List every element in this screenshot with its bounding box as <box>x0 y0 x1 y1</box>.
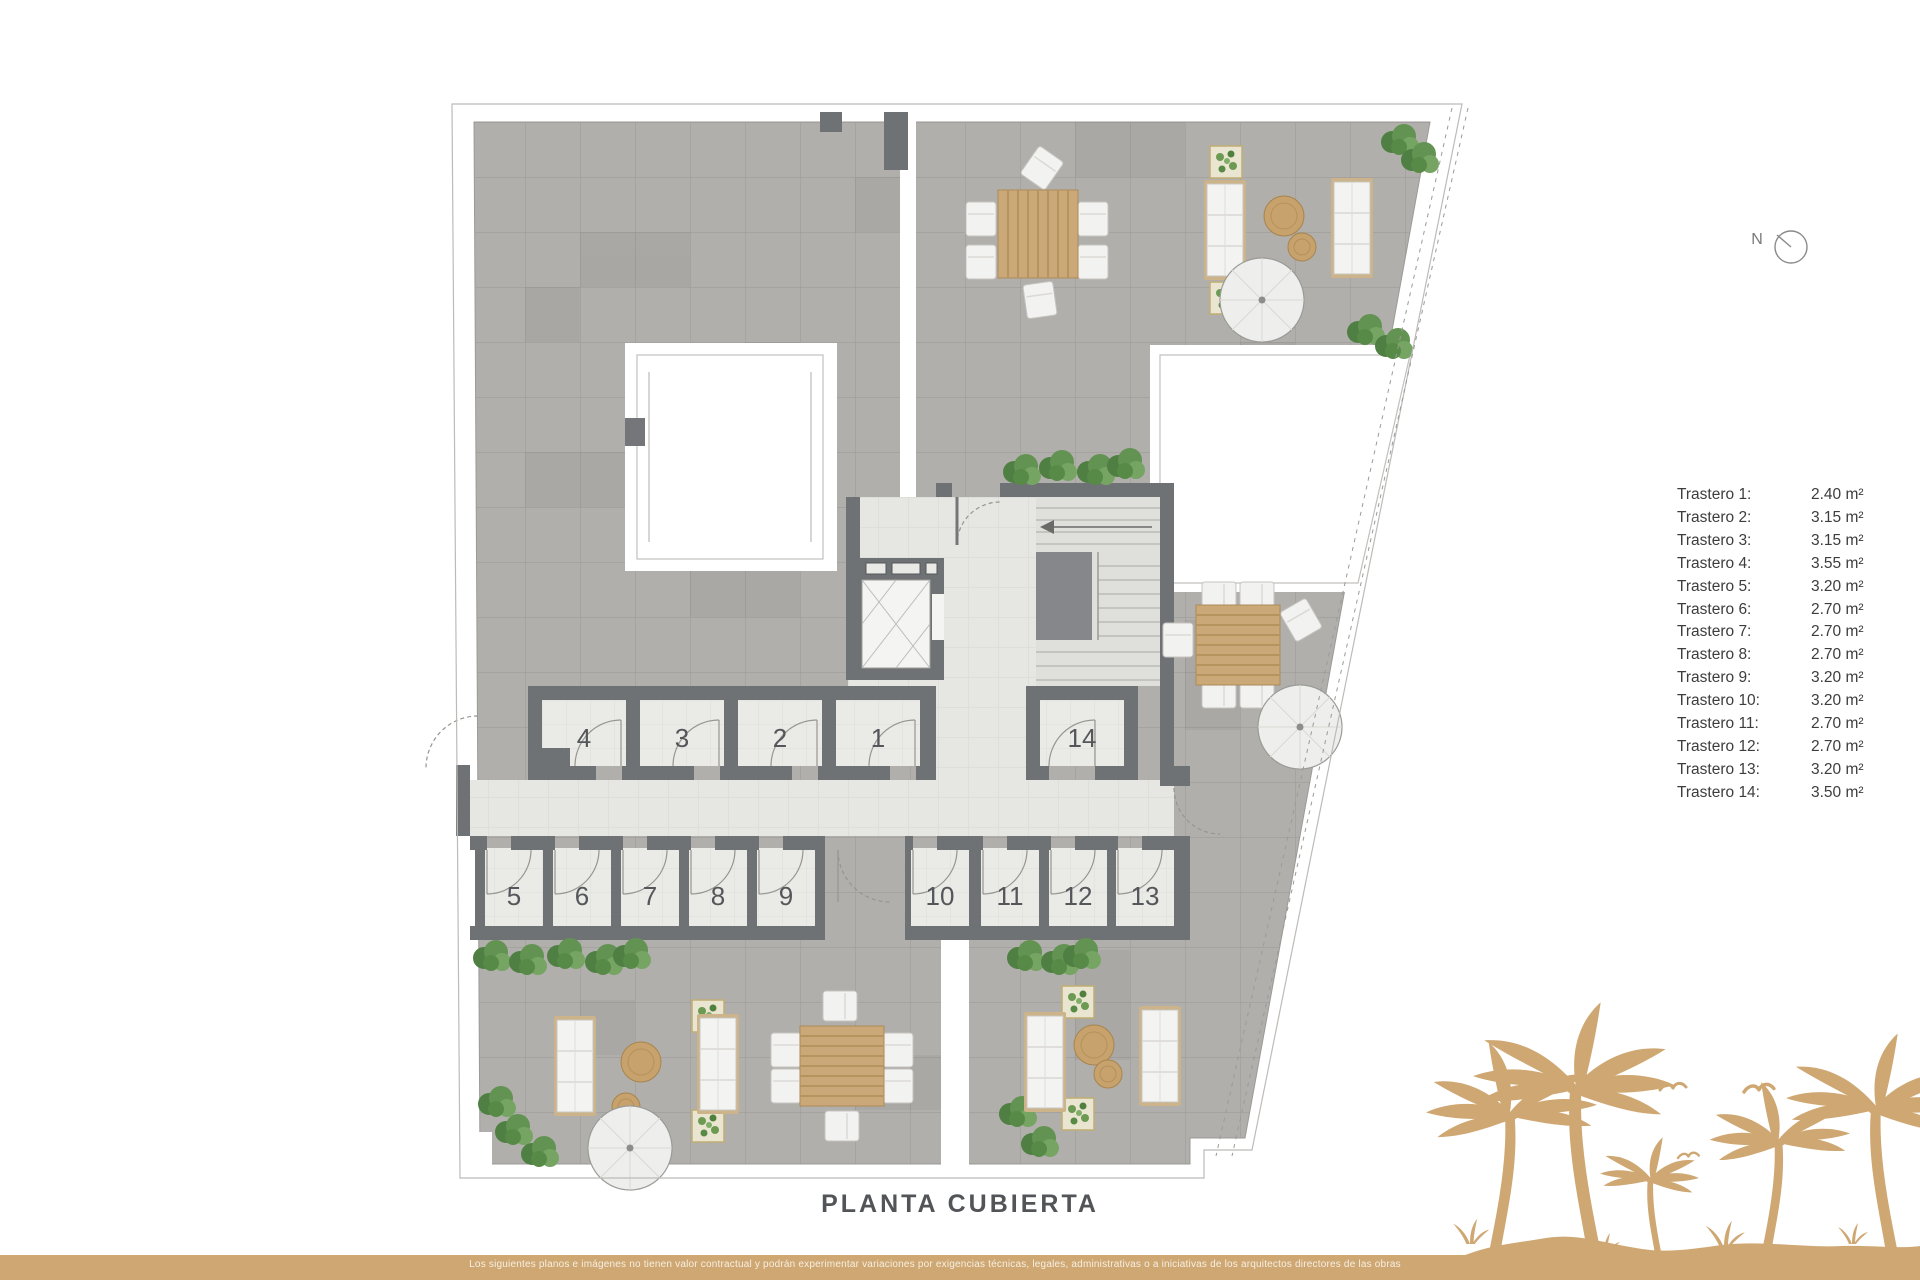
legend-value: 2.70 m² <box>1811 713 1911 736</box>
stair-landing <box>1036 552 1092 640</box>
compass-needle <box>1777 235 1791 247</box>
page-title: PLANTA CUBIERTA <box>660 1190 1260 1219</box>
legend-value: 3.20 m² <box>1811 690 1911 713</box>
legend-label: Trastero 14: <box>1677 782 1811 805</box>
legend-row: Trastero 4:3.55 m² <box>1677 553 1913 576</box>
legend-value: 3.50 m² <box>1811 782 1911 805</box>
legend-value: 2.40 m² <box>1811 484 1911 507</box>
compass-label: N <box>1751 231 1763 248</box>
legend-value: 3.20 m² <box>1811 667 1911 690</box>
legend-label: Trastero 9: <box>1677 667 1811 690</box>
room-number-6: 6 <box>575 881 589 911</box>
legend-label: Trastero 2: <box>1677 507 1811 530</box>
room-number-3: 3 <box>675 723 689 753</box>
terrace-gap <box>941 928 969 1168</box>
legend-value: 2.70 m² <box>1811 736 1911 759</box>
palm-trees-graphic <box>1426 1002 1920 1280</box>
legend-value: 3.20 m² <box>1811 759 1911 782</box>
room-number-1: 1 <box>871 723 885 753</box>
legend-label: Trastero 5: <box>1677 576 1811 599</box>
room-number-4: 4 <box>577 723 591 753</box>
legend-value: 3.55 m² <box>1811 553 1911 576</box>
edge-notch <box>468 1132 492 1166</box>
legend-value: 3.15 m² <box>1811 507 1911 530</box>
roof-anchor <box>625 418 645 446</box>
room-number-11: 11 <box>997 881 1024 911</box>
legend-row: Trastero 5:3.20 m² <box>1677 576 1913 599</box>
legend-row: Trastero 14:3.50 m² <box>1677 782 1913 805</box>
room-number-14: 14 <box>1068 723 1097 753</box>
skylight-left <box>625 343 837 571</box>
legend-row: Trastero 13:3.20 m² <box>1677 759 1913 782</box>
legend-row: Trastero 12:2.70 m² <box>1677 736 1913 759</box>
chimney-small <box>820 112 842 132</box>
legend-row: Trastero 7:2.70 m² <box>1677 621 1913 644</box>
legend-label: Trastero 3: <box>1677 530 1811 553</box>
skylight-right <box>1150 345 1424 592</box>
floor-plan: 4 3 2 1 14 5 6 7 8 9 10 11 12 13 <box>0 0 1920 1280</box>
legend-row: Trastero 2:3.15 m² <box>1677 507 1913 530</box>
legend-row: Trastero 9:3.20 m² <box>1677 667 1913 690</box>
elevator <box>846 558 944 680</box>
north-compass: N <box>1751 231 1807 263</box>
legend-label: Trastero 13: <box>1677 759 1811 782</box>
legend-row: Trastero 11:2.70 m² <box>1677 713 1913 736</box>
legend-value: 2.70 m² <box>1811 644 1911 667</box>
legend-row: Trastero 10:3.20 m² <box>1677 690 1913 713</box>
corridor-floor <box>470 780 1174 836</box>
legend-label: Trastero 11: <box>1677 713 1811 736</box>
room-number-2: 2 <box>773 723 787 753</box>
legend-label: Trastero 4: <box>1677 553 1811 576</box>
passage-floor <box>936 686 1026 780</box>
legend-label: Trastero 12: <box>1677 736 1811 759</box>
legend-row: Trastero 1:2.40 m² <box>1677 484 1913 507</box>
storage-legend: Trastero 1:2.40 m² Trastero 2:3.15 m² Tr… <box>1677 484 1913 805</box>
room-number-7: 7 <box>643 881 657 911</box>
legend-label: Trastero 7: <box>1677 621 1811 644</box>
room-number-10: 10 <box>926 881 955 911</box>
room-number-9: 9 <box>779 881 793 911</box>
page: 4 3 2 1 14 5 6 7 8 9 10 11 12 13 <box>0 0 1920 1280</box>
legend-row: Trastero 6:2.70 m² <box>1677 599 1913 622</box>
legend-value: 3.20 m² <box>1811 576 1911 599</box>
legend-label: Trastero 6: <box>1677 599 1811 622</box>
legend-row: Trastero 8:2.70 m² <box>1677 644 1913 667</box>
footer-disclaimer: Los siguientes planos e imágenes no tien… <box>0 1259 1870 1270</box>
legend-value: 3.15 m² <box>1811 530 1911 553</box>
room-number-5: 5 <box>507 881 521 911</box>
room-number-13: 13 <box>1131 881 1160 911</box>
legend-value: 2.70 m² <box>1811 599 1911 622</box>
room-number-12: 12 <box>1064 881 1093 911</box>
legend-label: Trastero 8: <box>1677 644 1811 667</box>
legend-label: Trastero 10: <box>1677 690 1811 713</box>
room-number-8: 8 <box>711 881 725 911</box>
legend-row: Trastero 3:3.15 m² <box>1677 530 1913 553</box>
legend-value: 2.70 m² <box>1811 621 1911 644</box>
elevator-door <box>932 594 944 640</box>
chimney-tall <box>884 112 908 170</box>
legend-label: Trastero 1: <box>1677 484 1811 507</box>
